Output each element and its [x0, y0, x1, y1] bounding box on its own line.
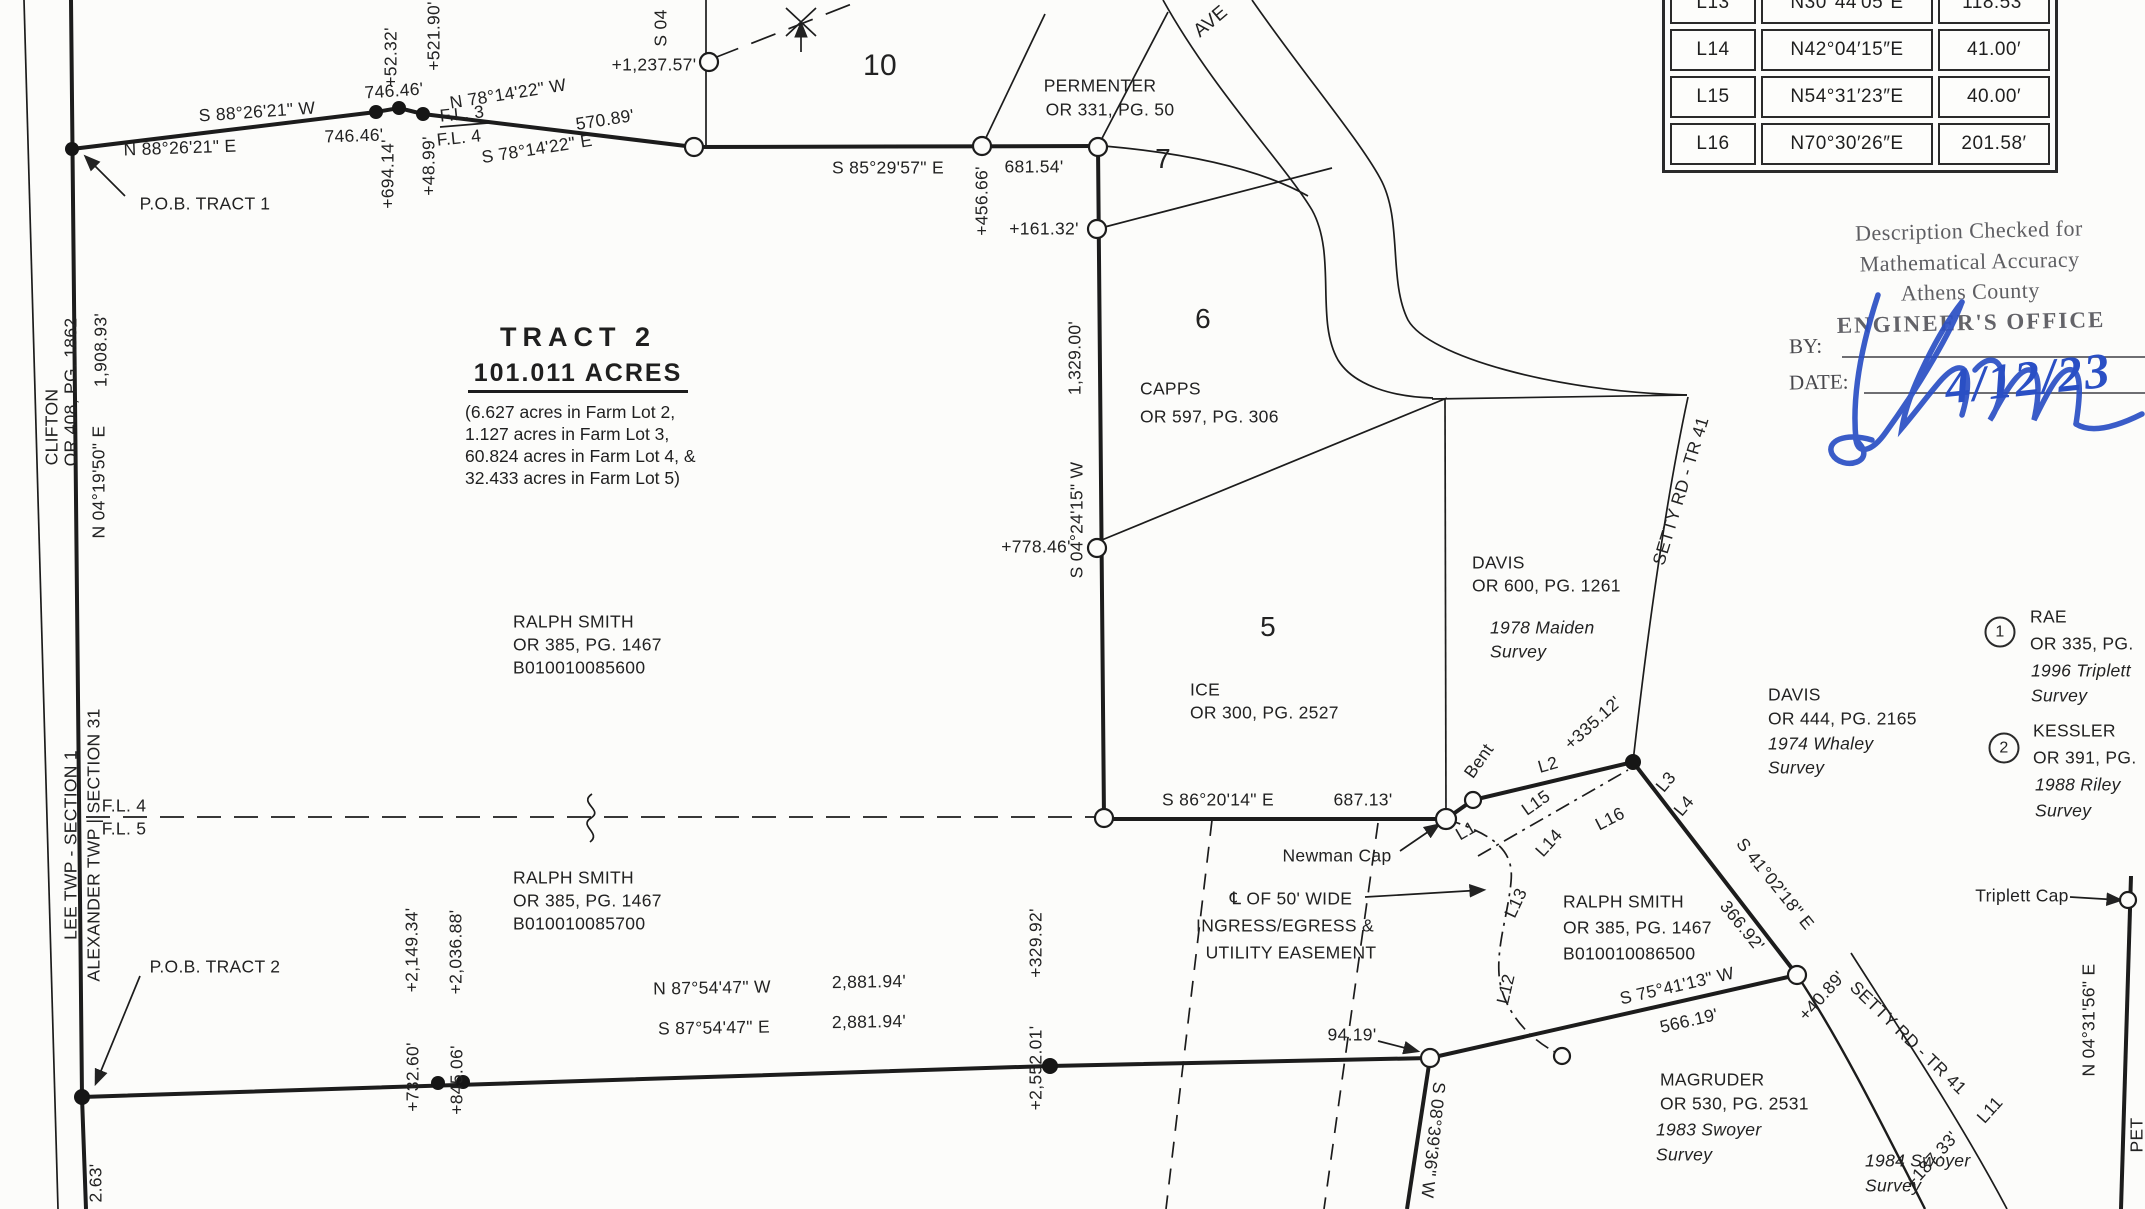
survey-plat-document: S 88°26'21" W746.46'N 88°26'21" E746.46'…: [0, 0, 2145, 1209]
engineer-signature: [0, 0, 2145, 1209]
